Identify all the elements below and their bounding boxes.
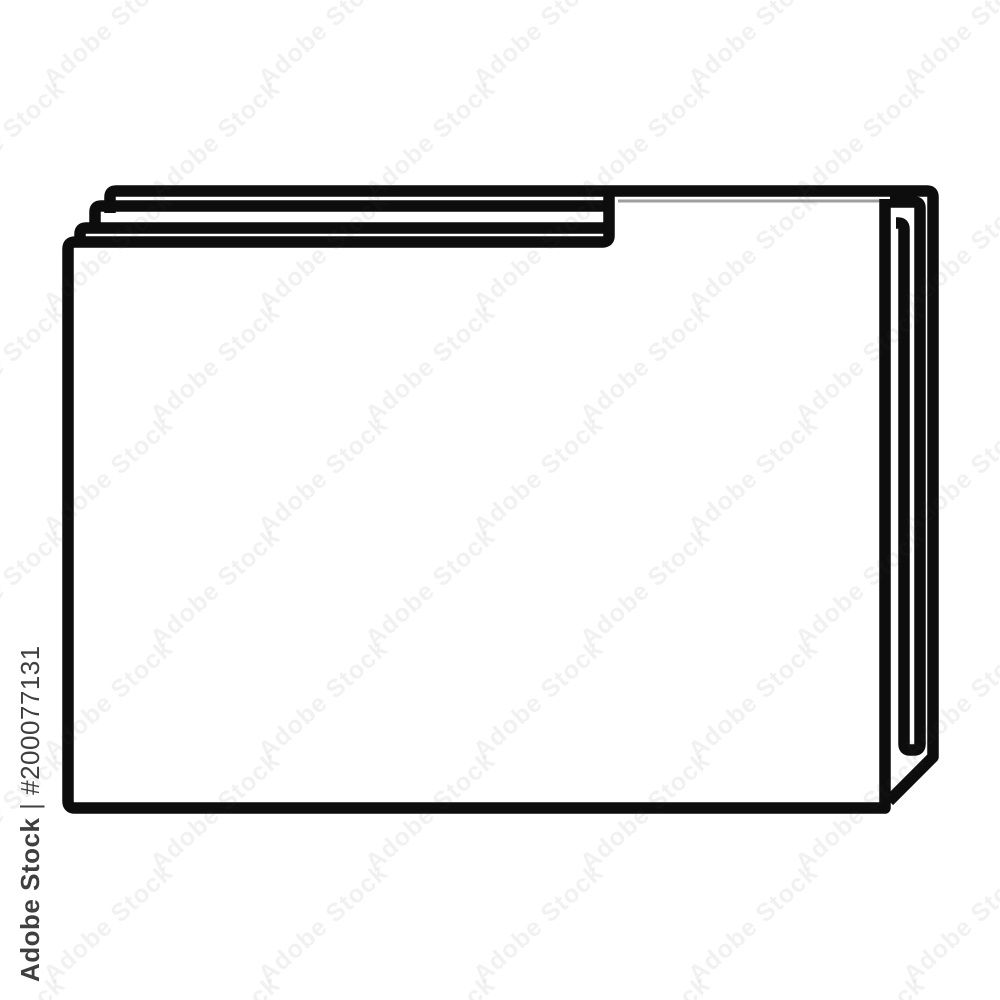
folder-back-outline xyxy=(110,191,933,801)
watermark-brand-text: Adobe Stock xyxy=(15,818,45,982)
watermark-separator: | xyxy=(15,795,45,818)
folder-front-panel xyxy=(68,194,885,808)
pages-right-edge xyxy=(890,202,920,750)
watermark-id-label: Adobe Stock | #200077131 xyxy=(15,645,46,982)
stock-image-preview: Adobe StockAdobe StockAdobe StockAdobe S… xyxy=(0,0,1000,1000)
folder-illustration xyxy=(0,0,1000,1000)
watermark-id-text: #200077131 xyxy=(15,645,45,795)
